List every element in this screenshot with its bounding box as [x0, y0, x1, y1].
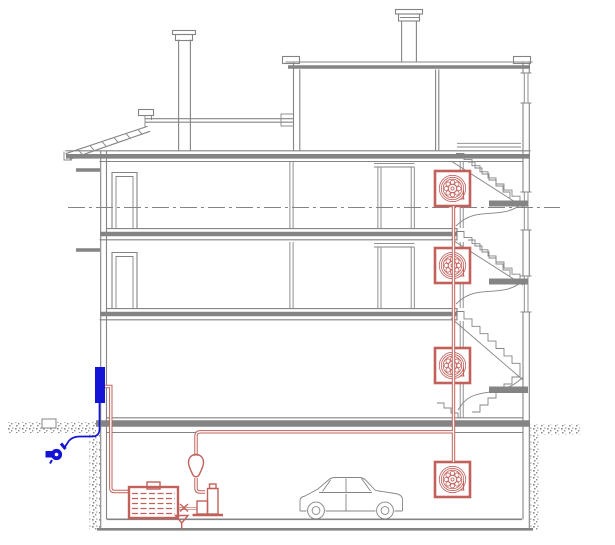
fire-piping [104, 206, 454, 512]
penthouse-left-wall [294, 63, 300, 150]
earth-right-wall [530, 435, 540, 530]
section-drawing-canvas [0, 0, 615, 545]
curb-post [42, 419, 56, 428]
basement-floor-slab [97, 519, 533, 529]
hose-reel-cabinet-icon [435, 462, 470, 497]
penthouse-sill [457, 143, 521, 147]
building-section-drawing [0, 0, 615, 545]
car-icon [300, 478, 403, 519]
tank-feed-pipe [104, 387, 129, 492]
chimney-icon [396, 10, 423, 63]
hose-reel-cabinet-icon [435, 171, 470, 206]
ground-surface-right [530, 424, 580, 435]
vessel-pump-pipe [196, 478, 205, 492]
water-tank-icon [129, 482, 178, 518]
penthouse-partition [436, 70, 439, 150]
fire-pump-assembly [129, 455, 223, 530]
chimney-icon [173, 31, 196, 151]
fire-department-connection-icon [95, 367, 105, 403]
supply-nozzle-icon [46, 444, 66, 464]
discharge-pipe [196, 432, 453, 456]
earth-left-wall [89, 433, 100, 530]
floor-slab [100, 229, 457, 240]
balcony-stub [76, 170, 100, 250]
terrace [139, 110, 294, 128]
floor-slab [100, 309, 457, 320]
expansion-vessel-icon [189, 455, 204, 477]
roof-slab [66, 151, 530, 162]
drain-funnel-icon [176, 516, 189, 530]
